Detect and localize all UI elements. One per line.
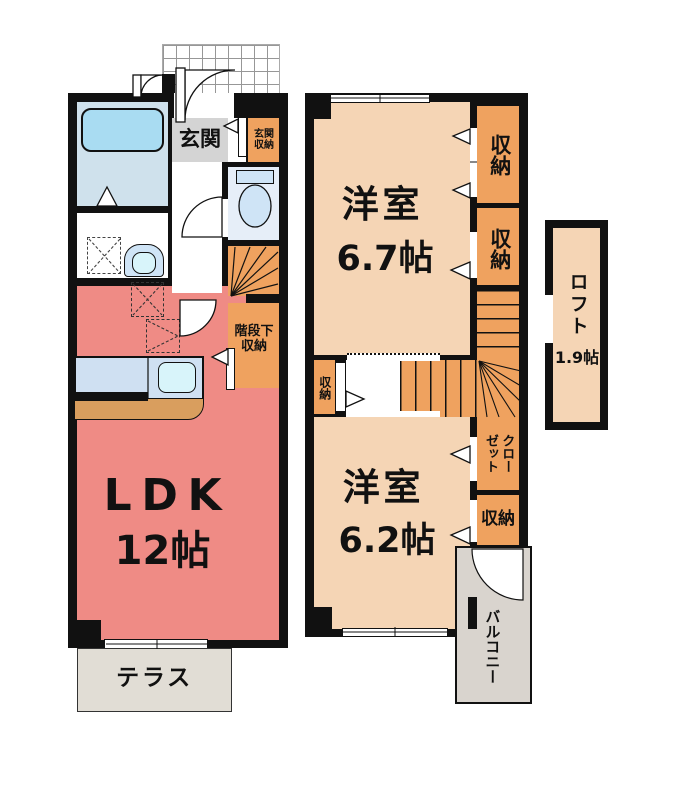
stairs-1f-wall bbox=[246, 294, 279, 303]
genkan-storage-door bbox=[238, 117, 247, 157]
stairs-2f-winder bbox=[477, 360, 519, 417]
stairs-1f bbox=[228, 246, 279, 296]
label-closet-a: 収納 bbox=[486, 128, 512, 182]
label-closet-walkin: クローゼット bbox=[481, 430, 515, 476]
toilet-door-gap bbox=[222, 199, 228, 237]
kitchen-counter-brown bbox=[74, 398, 204, 420]
label-loft-size: 1.9帖 bbox=[550, 346, 604, 370]
wash-basin-bowl bbox=[132, 252, 156, 274]
balcony-wall-jut bbox=[468, 597, 477, 629]
room-yoshitsu-67 bbox=[314, 102, 470, 355]
label-loft-name: ロフト bbox=[563, 265, 591, 345]
stairs-2f-upper-run bbox=[477, 290, 519, 360]
label-understairs-storage: 階段下収納 bbox=[231, 318, 277, 362]
appliance-space-1 bbox=[131, 282, 164, 317]
label-ldk-size: 12帖 bbox=[95, 527, 230, 575]
window-room67 bbox=[330, 94, 430, 103]
bathtub bbox=[81, 108, 164, 152]
label-room62-size: 6.2帖 bbox=[316, 520, 458, 564]
label-ldk-name: LDK bbox=[95, 470, 240, 522]
label-closet-d: 収納 bbox=[477, 503, 519, 537]
floor-plan: 玄関 玄関収納 階段下収納 LDK 12帖 テラス 洋室 6.7帖 収納 収納 … bbox=[0, 0, 691, 800]
label-balcony: バルコニー bbox=[478, 596, 506, 696]
washer-pan bbox=[87, 237, 121, 274]
label-room67-size: 6.7帖 bbox=[315, 238, 455, 282]
label-genkan-storage: 玄関収納 bbox=[250, 121, 278, 159]
closet-b-door-gap bbox=[470, 232, 477, 278]
loft-opening bbox=[545, 295, 553, 343]
closet-a-door-gap bbox=[470, 128, 477, 197]
label-terrace: テラス bbox=[77, 660, 232, 698]
room67-sliding-door bbox=[347, 353, 440, 361]
closet-d-door-gap bbox=[470, 500, 477, 542]
label-closet-hall-2f: 収納 bbox=[312, 372, 336, 404]
genkan-opening bbox=[174, 93, 234, 118]
hall-1f bbox=[172, 162, 222, 293]
label-room62-name: 洋室 bbox=[316, 465, 451, 511]
window-room62 bbox=[342, 628, 448, 637]
label-genkan: 玄関 bbox=[172, 118, 228, 162]
label-room67-name: 洋室 bbox=[315, 182, 450, 228]
stairs-2f-lower-run bbox=[400, 360, 477, 417]
toilet-tank bbox=[236, 170, 274, 184]
appliance-space-2 bbox=[146, 319, 180, 353]
kitchen-sink bbox=[158, 362, 196, 393]
corner-notch-2f-bl bbox=[314, 607, 332, 629]
corner-notch-2f-tl bbox=[314, 102, 331, 119]
label-closet-b: 収納 bbox=[486, 222, 512, 276]
kitchen-wall-bar bbox=[68, 392, 148, 401]
corner-notch-1f bbox=[77, 620, 101, 648]
hall-2f-door bbox=[335, 362, 346, 412]
closet-walkin-door-gap bbox=[470, 437, 477, 481]
stair-landing bbox=[346, 360, 400, 417]
